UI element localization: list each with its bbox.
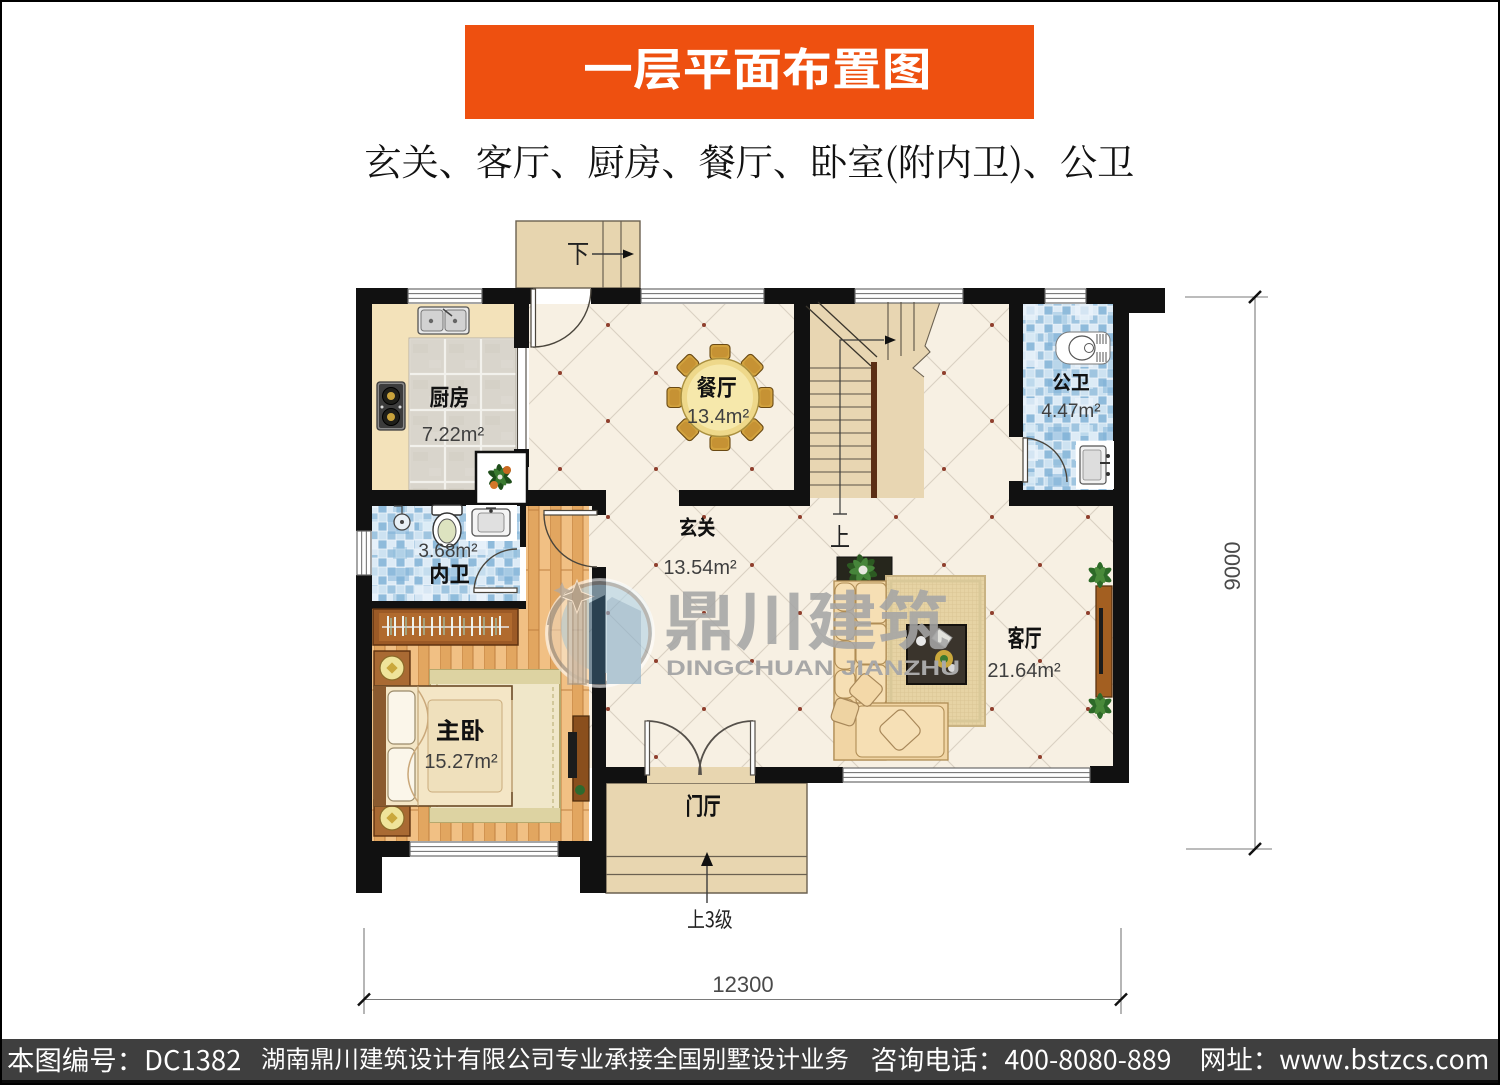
svg-text:4.47m²: 4.47m² [1041, 401, 1100, 422]
svg-text:12300: 12300 [712, 972, 773, 997]
svg-text:DINGCHUAN JIANZHU: DINGCHUAN JIANZHU [666, 657, 960, 680]
svg-text:9000: 9000 [1220, 542, 1245, 591]
svg-text:13.4m²: 13.4m² [687, 406, 750, 428]
svg-text:3.68m²: 3.68m² [418, 541, 477, 562]
svg-text:13.54m²: 13.54m² [663, 557, 737, 579]
svg-text:7.22m²: 7.22m² [422, 424, 485, 446]
svg-text:15.27m²: 15.27m² [424, 751, 498, 773]
svg-text:21.64m²: 21.64m² [987, 660, 1061, 682]
